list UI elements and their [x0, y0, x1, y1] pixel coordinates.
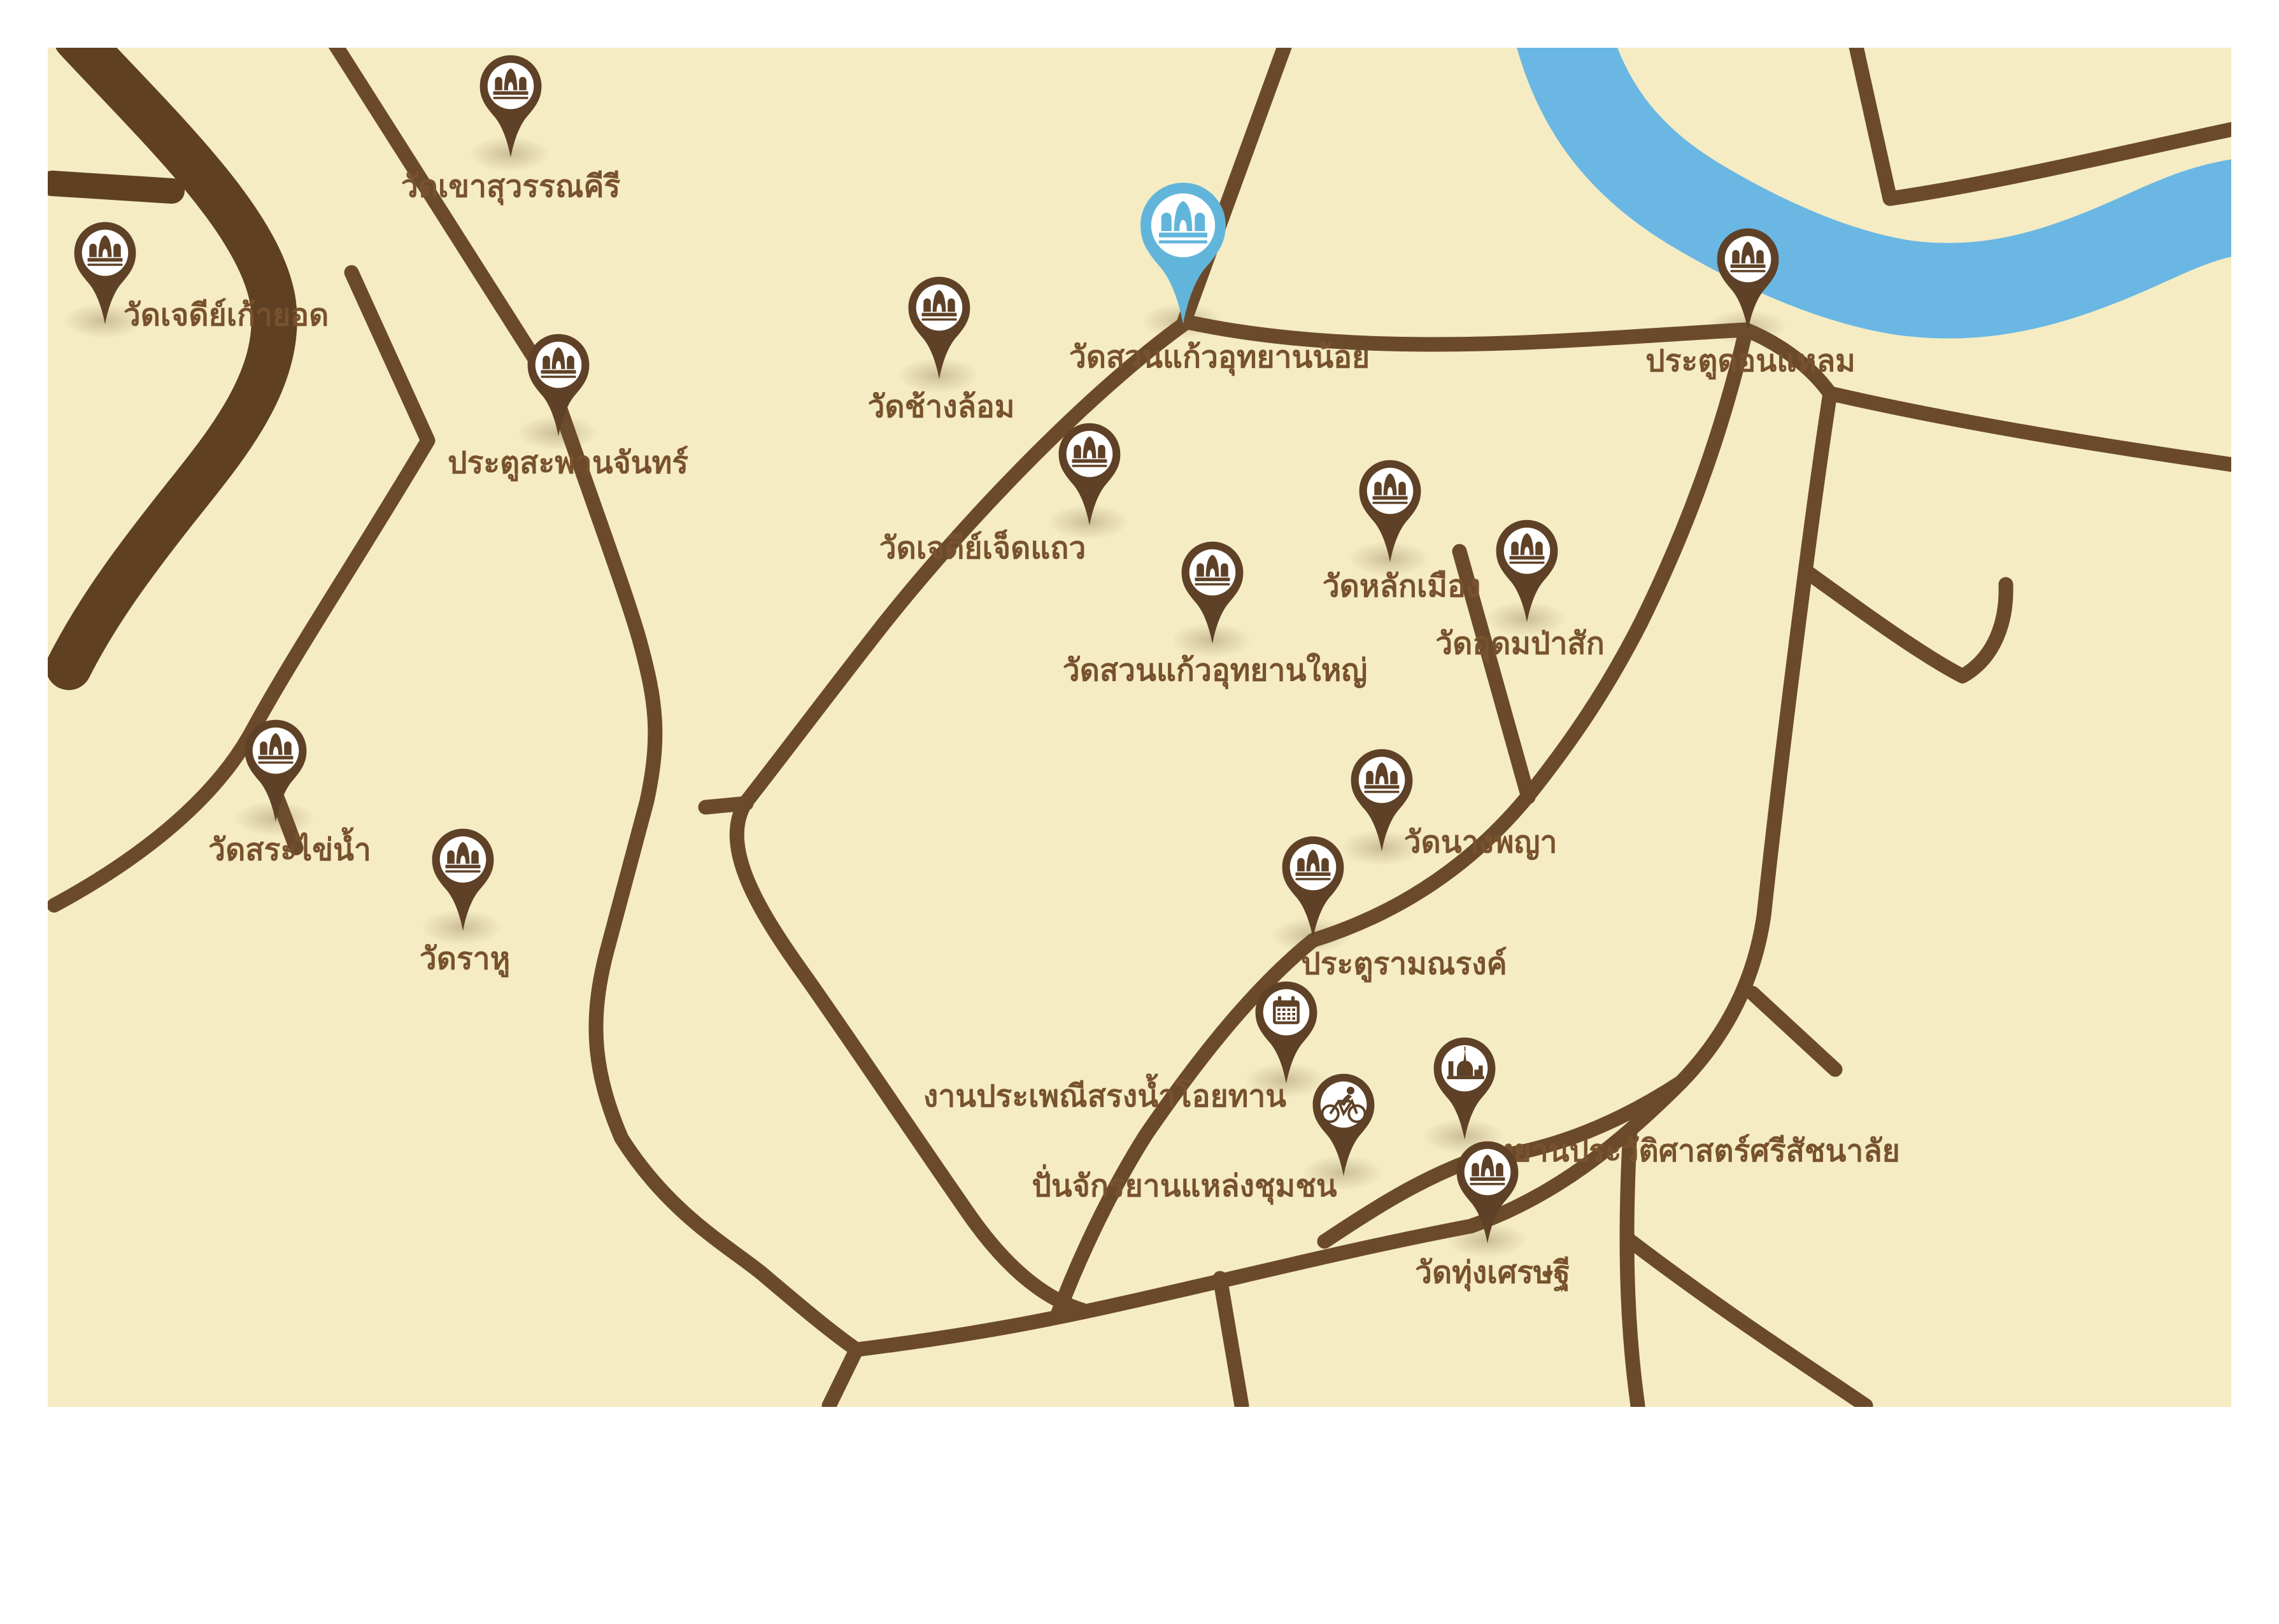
wat-pin-icon: [1355, 458, 1425, 564]
map-label-wat-khao-suwan-khiri: วัดเขาสุวรรณคีรี: [401, 171, 621, 204]
map-label-pratu-don-laem: ประตูดอนแหลม: [1645, 345, 1856, 379]
map-label-pratu-ram-narong: ประตูรามณรงค์: [1301, 948, 1507, 982]
map-canvas: วัดเขาสุวรรณคีรี วัดเจดีย์เก้ายอด ประตูส…: [48, 48, 2231, 1407]
park-pin-icon: [1430, 1036, 1500, 1141]
wat-pin-icon: [1054, 421, 1125, 527]
map-label-wat-sa-khai-nam: วัดสระไข่น้ำ: [208, 834, 371, 868]
map-label-wat-udom-pa-sak: วัดอุดมป่าสัก: [1435, 628, 1605, 661]
bicycle-pin-icon: [1309, 1072, 1379, 1178]
wat-pin-icon: [1278, 835, 1348, 940]
wat-pin-icon: [241, 718, 311, 824]
wat-pin-icon: [428, 827, 498, 933]
map-label-pratu-saphan-chan: ประตูสะพานจันทร์: [448, 447, 688, 481]
wat-pin-icon: [1492, 518, 1562, 624]
map-label-wat-chedi-chet-thaeo: วัดเจดีย์เจ็ดแถว: [879, 532, 1086, 566]
map-label-wat-suan-kaeo-utthayan-yai: วัดสวนแก้วอุทยานใหญ่: [1063, 654, 1367, 688]
map-label-pan-chakkrayan-laeng-chumchon: ปั่นจักรยานแหล่งชุมชน: [1032, 1170, 1337, 1204]
map-label-wat-nang-phaya: วัดนางพญา: [1404, 826, 1558, 860]
markers-layer: วัดเขาสุวรรณคีรี วัดเจดีย์เก้ายอด ประตูส…: [48, 48, 2231, 1407]
calendar-pin-icon: [1251, 980, 1321, 1085]
map-label-wat-suan-kaeo-utthayan-noi: วัดสวนแก้วอุทยานน้อย: [1069, 341, 1370, 375]
map-label-utthayan-prawattisat-si-satchanalai: อุทยานประวัติศาสตร์ศรีสัชนาลัย: [1475, 1135, 1900, 1169]
wat-pin-icon: [523, 332, 593, 438]
wat-pin-icon: [1713, 227, 1783, 332]
map-label-wat-rahu: วัดราหู: [420, 943, 511, 977]
wat-pin-icon: [904, 275, 974, 381]
map-label-ngan-prapheni-songnam-oyathan: งานประเพณีสรงน้ำโอยทาน: [923, 1080, 1286, 1114]
wat-pin-icon: [1135, 181, 1232, 326]
wat-pin-icon: [1177, 540, 1247, 646]
map-label-wat-thung-setthi: วัดทุ่งเศรษฐี: [1415, 1257, 1570, 1290]
info-panel: ๐มรดกพระร่วง๐ วัดสวนแก้วอุทยานน้อย ที่อย…: [0, 1407, 2279, 1624]
wat-pin-icon: [1452, 1140, 1523, 1245]
map-label-wat-chang-lom: วัดช้างล้อม: [868, 391, 1015, 425]
wat-pin-icon: [476, 53, 546, 159]
map-label-wat-chedi-kao-yot: วัดเจดีย์เก้ายอด: [124, 299, 329, 333]
map-poster: วัดเขาสุวรรณคีรี วัดเจดีย์เก้ายอด ประตูส…: [0, 0, 2279, 1624]
map-label-wat-lak-mueang: วัดหลักเมือง: [1323, 570, 1481, 604]
